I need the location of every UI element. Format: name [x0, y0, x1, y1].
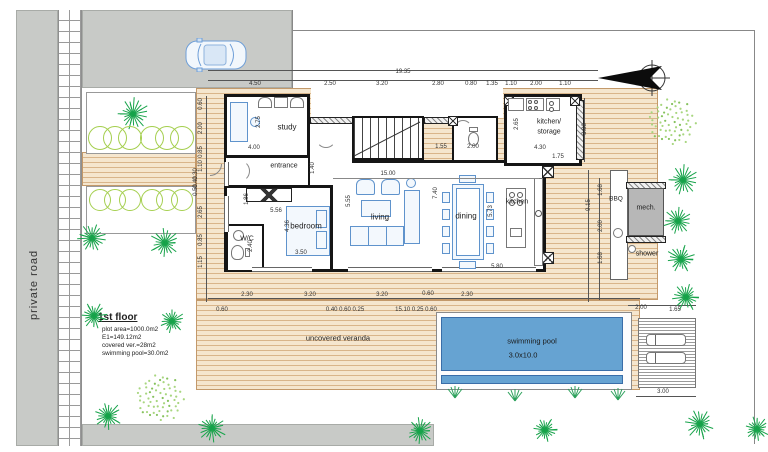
tree-icon	[663, 206, 693, 236]
desk	[230, 102, 248, 142]
dimension-label: 2.00	[530, 81, 542, 87]
desk-chair	[250, 117, 260, 127]
sink-bowl	[549, 107, 554, 112]
chair	[442, 192, 450, 203]
island-sink	[510, 228, 522, 237]
tree-icon	[684, 408, 716, 440]
dim-line	[333, 178, 539, 179]
shelf-1	[258, 97, 272, 108]
sofa	[350, 226, 404, 246]
kitchen-counter	[534, 178, 543, 266]
burner	[509, 192, 515, 198]
plot-boundary-west	[292, 10, 293, 88]
sun-lounger-2	[646, 352, 686, 364]
window-bedroom-south	[252, 267, 312, 272]
plot-boundary-right	[754, 30, 755, 444]
tree-icon	[671, 282, 701, 312]
dimension-label: 1.65	[669, 307, 681, 313]
lounger-pillow-2	[655, 353, 656, 363]
dim-line	[208, 70, 598, 71]
mech-label: mech.	[636, 205, 655, 212]
sink-bowl	[549, 101, 554, 106]
kitchen-storage-label-2: storage	[537, 129, 560, 136]
wc-toilet	[231, 245, 244, 260]
dim-line	[206, 96, 207, 302]
tree-icon	[667, 164, 699, 196]
pool-overflow-strip	[441, 375, 623, 384]
column-5	[448, 116, 458, 126]
dim-line	[208, 298, 640, 299]
column-3	[542, 166, 554, 178]
wc-top-tank	[469, 127, 478, 132]
wall-hatched-1	[310, 117, 354, 124]
chair	[442, 226, 450, 237]
stove-burner	[528, 100, 532, 104]
tv-unit	[404, 190, 420, 244]
armchair-2	[381, 179, 400, 195]
door-arc-entrance	[228, 160, 250, 182]
planter-bottom	[86, 186, 196, 234]
entry-walkway	[82, 152, 196, 186]
chair	[459, 175, 476, 183]
dimension-label: 1.10	[505, 81, 517, 87]
shower-label: shower	[636, 251, 659, 258]
chair	[442, 209, 450, 220]
sidewalk	[58, 10, 82, 446]
column-4	[542, 252, 554, 264]
tree-icon	[666, 244, 696, 274]
bush-icon	[134, 372, 186, 424]
pool-size-label: 3.0x10.0	[509, 351, 538, 360]
pillow-2	[316, 231, 327, 249]
chair	[459, 261, 476, 269]
wall-bedroom-east	[330, 185, 333, 272]
counter-sink	[535, 210, 542, 217]
plot-boundary-top	[292, 30, 754, 31]
planter-top	[86, 92, 196, 154]
stove-burner	[534, 100, 538, 104]
chair	[486, 209, 494, 220]
mech-wall-bottom	[626, 236, 666, 243]
storage-unit	[508, 98, 524, 111]
setback-notch	[311, 88, 503, 118]
lounger-pillow-1	[655, 335, 656, 345]
plant-pot	[406, 178, 416, 188]
info-line: plot area=1000.0m2	[102, 326, 218, 333]
kitchen-storage-label-1: kitchen/	[537, 119, 561, 126]
dim-line	[599, 178, 600, 300]
dim-line	[584, 98, 585, 162]
dining-label: dining	[455, 212, 476, 221]
column-2	[570, 96, 580, 106]
dimension-label: 1.35	[486, 81, 498, 87]
door-dining-south	[442, 267, 536, 272]
car-icon	[184, 38, 248, 72]
info-line: covered ver.=28m2	[102, 342, 218, 349]
info-line: E1=149.12m2	[102, 334, 218, 341]
burner	[517, 192, 523, 198]
shelf-3	[290, 97, 304, 108]
veranda-label: uncovered veranda	[306, 334, 370, 343]
north-arrow-icon	[596, 54, 684, 102]
door-arc-hall	[316, 128, 336, 148]
wall-hatched-3	[576, 100, 584, 160]
info-block: 1st floor plot area=1000.0m2 E1=149.12m2…	[98, 312, 218, 357]
dimension-label: 2.80	[432, 81, 444, 87]
wc-toilet-tank	[245, 248, 250, 257]
wc-top-toilet	[468, 132, 479, 146]
wardrobe	[246, 188, 292, 202]
window-bedroom-west	[224, 196, 229, 232]
bedroom-label: bedroom	[290, 222, 322, 231]
chair	[486, 243, 494, 254]
dim-line	[588, 170, 589, 302]
armchair-1	[356, 179, 375, 195]
wc-label: W/C	[240, 236, 254, 243]
dimension-label: 1.10	[559, 81, 571, 87]
bbq-sink	[613, 228, 623, 238]
info-line: swimming pool=30.0m2	[102, 350, 218, 357]
dim-line	[208, 80, 598, 81]
mech-room	[628, 188, 664, 236]
dimension-label: 2.50	[324, 81, 336, 87]
dim-line	[628, 305, 696, 306]
entrance-label: entrance	[270, 163, 297, 170]
grass-icon	[507, 389, 523, 401]
road-bottom	[82, 424, 434, 446]
pool-name-label: swimming pool	[507, 337, 557, 346]
dim-line	[636, 396, 696, 397]
floor-plan-canvas: private road	[0, 0, 768, 452]
stove-burner	[528, 106, 532, 110]
chair	[442, 243, 450, 254]
stove-burner	[534, 106, 538, 110]
tree-icon	[744, 416, 768, 442]
sun-lounger-1	[646, 334, 686, 346]
door-living-south	[348, 267, 432, 272]
private-road-label: private road	[28, 200, 40, 320]
staircase	[352, 116, 424, 160]
shelf-2	[274, 97, 288, 108]
kitchen-label: kitchen	[506, 199, 528, 206]
study-label: study	[277, 123, 296, 132]
bbq-label: BBQ	[609, 196, 623, 203]
chair	[486, 226, 494, 237]
dimension-label: 3.20	[376, 81, 388, 87]
dining-table-inner	[456, 188, 480, 256]
chair	[486, 192, 494, 203]
tree-icon	[532, 417, 558, 443]
dimension-label: 0.80	[465, 81, 477, 87]
info-title: 1st floor	[98, 312, 218, 323]
living-label: living	[371, 213, 389, 222]
dimension-label: 3.00	[657, 389, 669, 395]
